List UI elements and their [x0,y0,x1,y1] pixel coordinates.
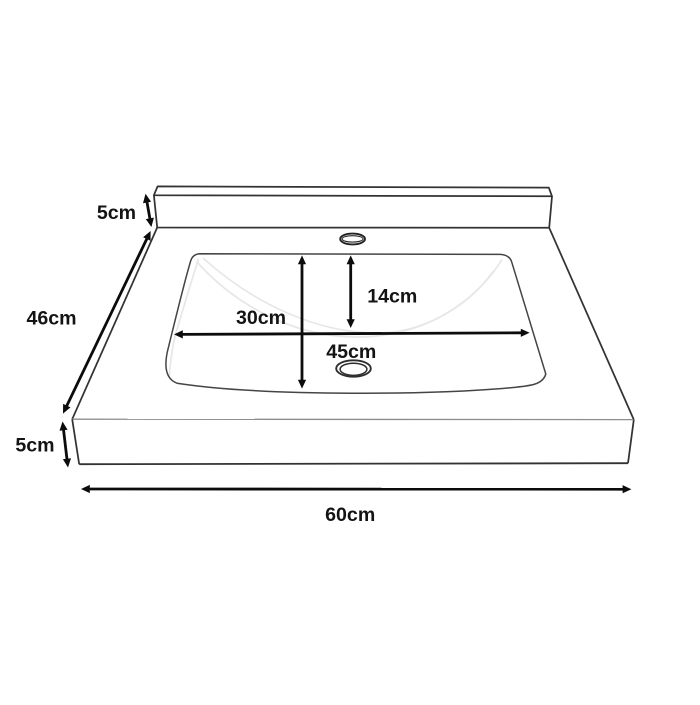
svg-text:5cm: 5cm [15,435,54,457]
svg-text:14cm: 14cm [367,285,417,307]
svg-text:45cm: 45cm [326,341,376,363]
svg-text:5cm: 5cm [97,202,136,224]
svg-text:46cm: 46cm [26,308,76,330]
svg-text:60cm: 60cm [325,504,375,526]
svg-text:30cm: 30cm [236,307,286,329]
